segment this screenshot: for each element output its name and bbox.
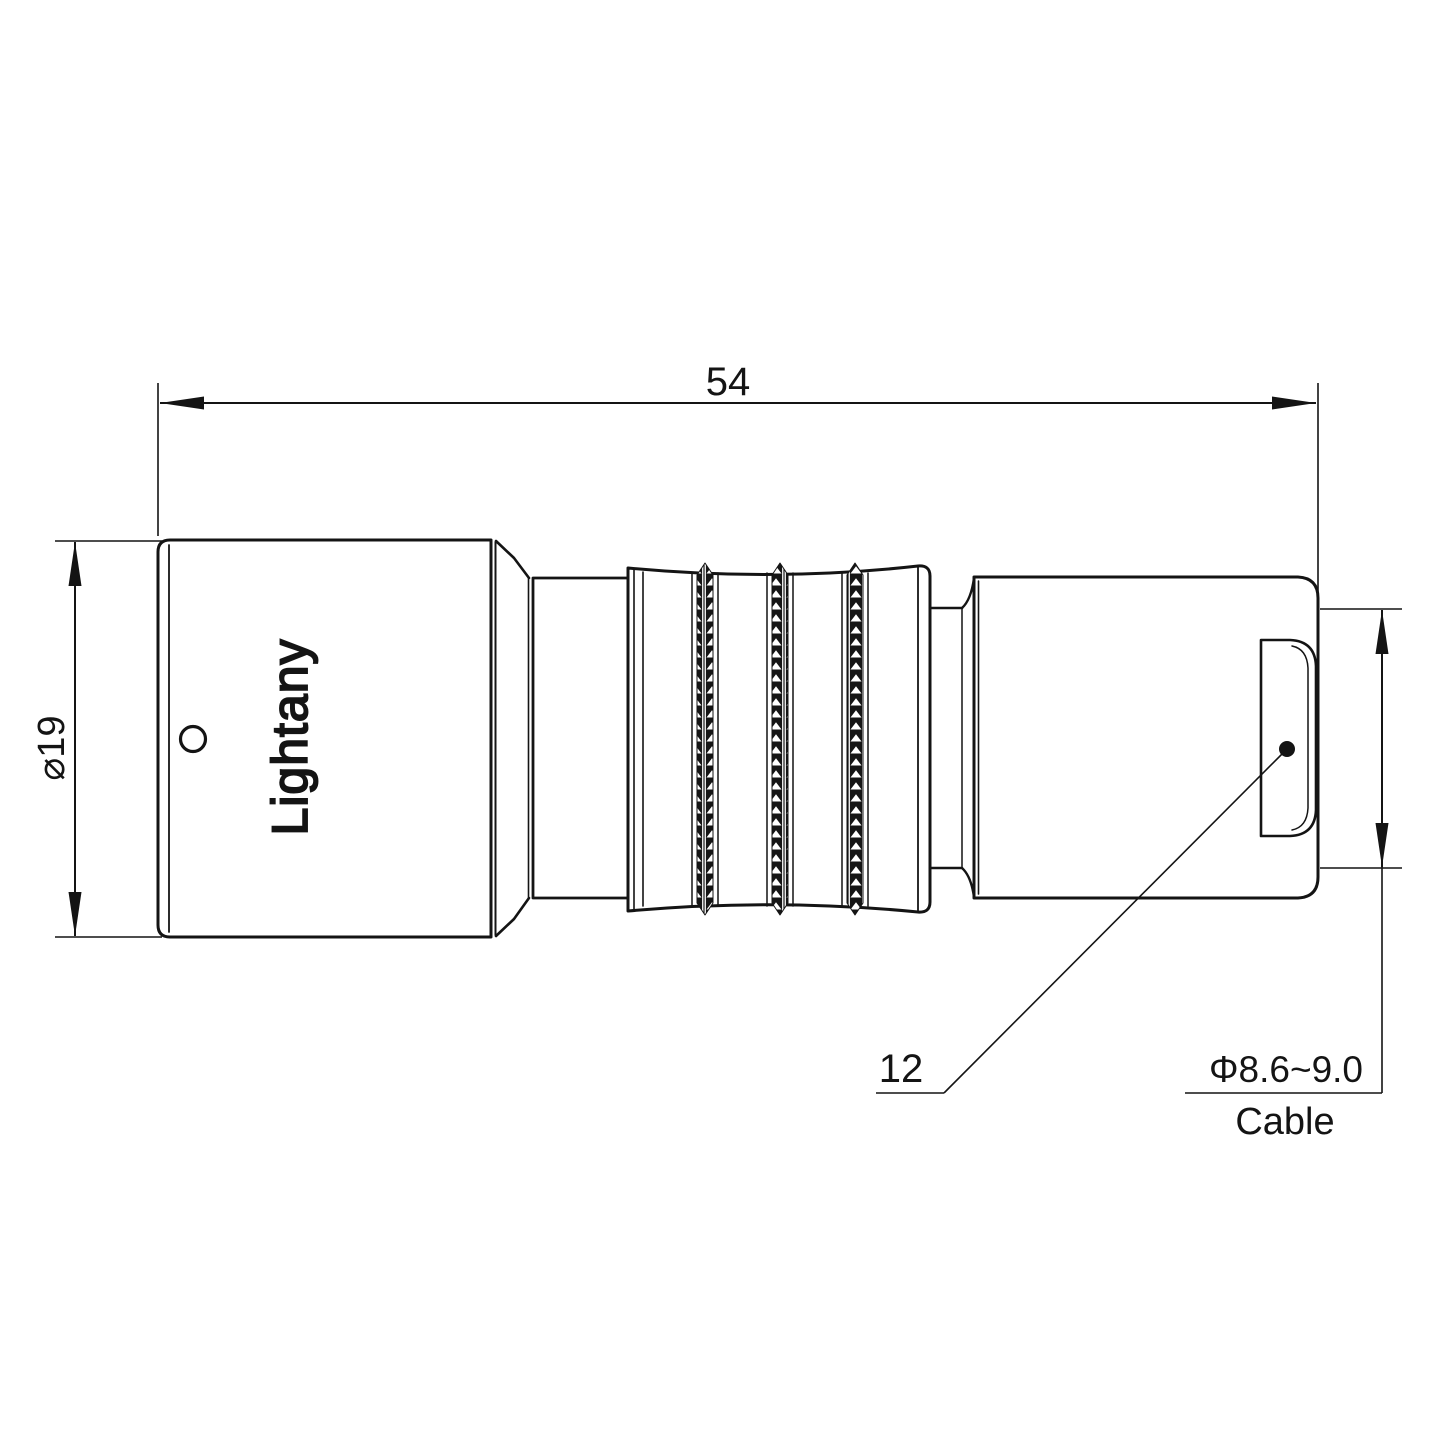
dimension-diameter-text: ⌀19: [31, 715, 73, 780]
knurl-drum: [628, 563, 930, 915]
arrowhead-up: [1376, 610, 1389, 654]
knurl-band: [697, 563, 713, 915]
taper-bottom: [496, 898, 529, 936]
knurl-band: [772, 563, 788, 915]
arrowhead-left: [160, 397, 204, 410]
technical-drawing-canvas: Lightany: [0, 0, 1440, 1440]
dimension-rear-text: 12: [879, 1047, 924, 1091]
knurl-band: [847, 563, 863, 915]
dimension-cable-range-text: Φ8.6~9.0: [1209, 1049, 1363, 1090]
arrowhead-down: [1376, 823, 1389, 867]
neck-section: [930, 578, 974, 897]
connector-drawing: Lightany: [0, 0, 1440, 1440]
mid-cylinder: [533, 578, 628, 898]
dimension-cable-label-text: Cable: [1235, 1101, 1334, 1143]
arrowhead-down: [69, 892, 82, 936]
neck-chamfer-top: [962, 578, 974, 608]
taper-section: [496, 541, 530, 936]
body-engraving-text: Lightany: [262, 638, 318, 835]
front-body-outline: [158, 540, 491, 937]
dimension-length-text: 54: [706, 360, 751, 404]
cable-bushing: [1261, 640, 1316, 836]
front-body: [158, 540, 491, 937]
arrowhead-right: [1272, 397, 1316, 410]
knurl-band-group: [692, 563, 868, 915]
arrowhead-up: [69, 542, 82, 586]
connector-outline: [158, 540, 1318, 937]
neck-chamfer-bottom: [962, 868, 974, 897]
taper-top: [496, 541, 529, 578]
dimension-diameter: ⌀19: [31, 541, 162, 937]
